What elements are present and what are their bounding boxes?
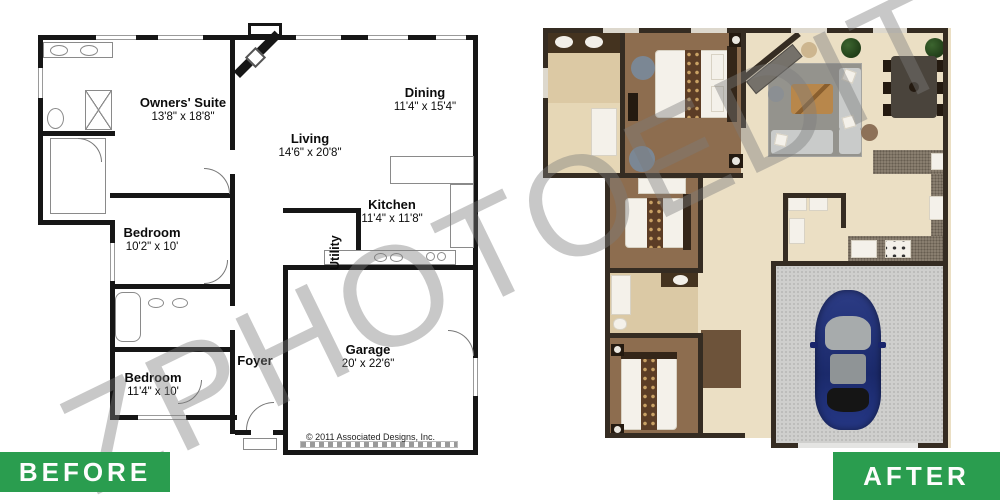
pillow bbox=[711, 54, 724, 80]
wall bbox=[110, 284, 235, 289]
dryer bbox=[809, 196, 828, 211]
wall bbox=[38, 131, 115, 136]
wall bbox=[38, 220, 115, 225]
bed-runner bbox=[685, 50, 701, 118]
car-sunroof bbox=[830, 354, 866, 384]
room-label-foyer: Foyer bbox=[223, 354, 287, 369]
dresser bbox=[591, 108, 617, 156]
window bbox=[368, 35, 408, 40]
media-cabinet bbox=[628, 93, 638, 121]
cooktop-burner bbox=[437, 252, 446, 261]
door-arc bbox=[204, 260, 228, 284]
kitchen-counter bbox=[450, 184, 474, 248]
window bbox=[296, 35, 341, 40]
kitchen-sink bbox=[390, 253, 403, 262]
coffee-table bbox=[791, 84, 833, 114]
room-label-living: Living 14'6" x 20'8" bbox=[250, 132, 370, 160]
sofa bbox=[839, 128, 861, 154]
lamp bbox=[732, 157, 740, 165]
wall bbox=[543, 28, 548, 178]
car-windshield bbox=[825, 316, 871, 350]
ottoman bbox=[861, 124, 878, 141]
lamp bbox=[732, 36, 740, 44]
sink bbox=[80, 45, 98, 56]
door-arc bbox=[448, 330, 474, 356]
footboard bbox=[621, 352, 677, 359]
sink bbox=[172, 298, 188, 308]
room-dims: 13'8" x 18'8" bbox=[118, 111, 248, 124]
sink bbox=[555, 36, 573, 48]
sink bbox=[585, 36, 603, 48]
hall-closet-floor bbox=[701, 330, 741, 388]
wall bbox=[783, 193, 788, 261]
outline-mask bbox=[543, 178, 605, 456]
toilet bbox=[47, 108, 64, 129]
room-name: Living bbox=[250, 132, 370, 147]
washer bbox=[788, 196, 807, 211]
window bbox=[436, 35, 466, 40]
window bbox=[873, 28, 907, 33]
cabinet bbox=[851, 240, 877, 258]
wall bbox=[783, 193, 845, 198]
after-badge: AFTER bbox=[833, 452, 1000, 500]
before-badge: BEFORE bbox=[0, 452, 170, 492]
car-rear-window bbox=[827, 388, 869, 412]
lamp bbox=[614, 346, 621, 353]
kitchen-sink bbox=[374, 253, 387, 262]
wall bbox=[620, 33, 625, 173]
wall bbox=[698, 173, 703, 273]
wall bbox=[283, 450, 476, 455]
window bbox=[473, 358, 478, 396]
room-name: Foyer bbox=[223, 354, 287, 369]
shower bbox=[85, 90, 112, 130]
wall bbox=[110, 347, 235, 352]
before-floor-plan: Owners' Suite 13'8" x 18'8" Living 14'6"… bbox=[38, 28, 478, 460]
room-label-dining: Dining 11'4" x 15'4" bbox=[368, 86, 482, 114]
door-opening bbox=[230, 150, 235, 174]
sink bbox=[50, 45, 68, 56]
room-name: Bedroom bbox=[103, 371, 203, 386]
room-name: Owners' Suite bbox=[118, 96, 248, 111]
wall bbox=[771, 261, 776, 448]
pillow bbox=[711, 86, 724, 112]
water-heater bbox=[789, 218, 805, 244]
headboard bbox=[683, 194, 691, 250]
room-label-owners-suite: Owners' Suite 13'8" x 18'8" bbox=[118, 96, 248, 124]
room-name: Dining bbox=[368, 86, 482, 101]
round-side-table bbox=[801, 42, 817, 58]
lamp bbox=[614, 426, 621, 433]
shower bbox=[611, 275, 631, 315]
room-label-garage: Garage 20' x 22'6" bbox=[293, 343, 443, 371]
car-mirror bbox=[810, 342, 818, 348]
sofa-pillow bbox=[774, 133, 788, 147]
headboard bbox=[727, 46, 737, 122]
ottoman bbox=[629, 146, 655, 172]
bed-runner bbox=[647, 198, 663, 248]
window bbox=[543, 68, 548, 98]
wall bbox=[610, 268, 703, 273]
bed-runner bbox=[641, 356, 657, 430]
window bbox=[691, 28, 727, 33]
door-opening bbox=[251, 430, 273, 435]
room-dims: 11'4" x 10' bbox=[103, 386, 203, 399]
room-label-bedroom1: Bedroom 10'2" x 10' bbox=[102, 226, 202, 254]
room-label-bedroom2: Bedroom 11'4" x 10' bbox=[103, 371, 203, 399]
wall bbox=[38, 35, 43, 225]
after-floor-plan bbox=[543, 28, 951, 456]
door-arc bbox=[204, 168, 230, 194]
room-dims: 14'6" x 20'8" bbox=[250, 147, 370, 160]
window bbox=[138, 415, 186, 420]
ottoman bbox=[768, 86, 784, 102]
window bbox=[791, 28, 827, 33]
sink bbox=[148, 298, 164, 308]
wall bbox=[841, 193, 846, 228]
window bbox=[38, 68, 43, 98]
window bbox=[603, 28, 639, 33]
potted-plant bbox=[925, 38, 945, 58]
wall bbox=[610, 333, 703, 338]
wall bbox=[283, 265, 473, 270]
toilet bbox=[613, 318, 627, 330]
kitchen-counter bbox=[390, 156, 474, 184]
entry-step bbox=[243, 438, 277, 450]
potted-plant bbox=[841, 38, 861, 58]
room-name: Bedroom bbox=[102, 226, 202, 241]
wall bbox=[230, 35, 235, 434]
window bbox=[158, 35, 203, 40]
door-arc bbox=[246, 402, 274, 430]
desk bbox=[638, 178, 686, 194]
room-name: Garage bbox=[293, 343, 443, 358]
garage-door bbox=[300, 441, 458, 448]
room-label-utility: Utility bbox=[328, 210, 342, 270]
bathtub bbox=[115, 292, 141, 342]
room-dims: 11'4" x 15'4" bbox=[368, 101, 482, 114]
car-mirror bbox=[878, 342, 886, 348]
stove bbox=[885, 240, 911, 258]
room-label-kitchen: Kitchen 11'4" x 11'8" bbox=[340, 198, 444, 226]
door-opening bbox=[230, 306, 235, 330]
wall bbox=[698, 333, 703, 433]
wall bbox=[771, 261, 948, 266]
wall bbox=[605, 173, 610, 438]
outline-mask bbox=[605, 438, 771, 456]
wall bbox=[943, 28, 948, 448]
ottoman bbox=[631, 56, 655, 80]
sink bbox=[673, 275, 688, 285]
room-dims: 11'4" x 11'8" bbox=[340, 213, 444, 226]
before-after-floorplan-comparison: Owners' Suite 13'8" x 18'8" Living 14'6"… bbox=[0, 0, 1000, 500]
room-dims: 20' x 22'6" bbox=[293, 358, 443, 371]
cooktop-burner bbox=[426, 252, 435, 261]
table-centerpiece bbox=[909, 82, 919, 92]
room-name: Kitchen bbox=[340, 198, 444, 213]
copyright-text: © 2011 Associated Designs, Inc. bbox=[273, 432, 468, 442]
wall bbox=[741, 33, 746, 128]
room-dims: 10'2" x 10' bbox=[102, 241, 202, 254]
window bbox=[96, 35, 136, 40]
